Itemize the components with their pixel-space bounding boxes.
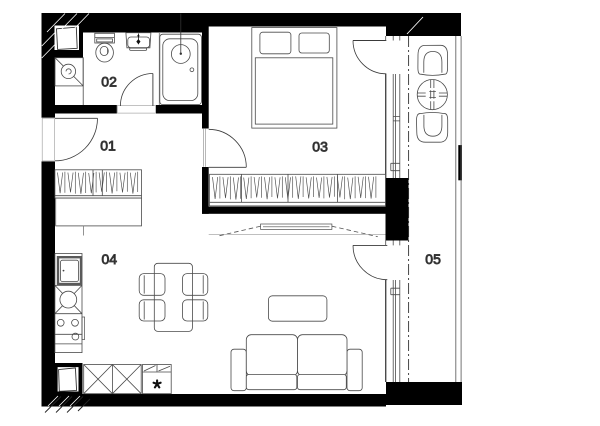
svg-text:01: 01	[100, 137, 116, 153]
svg-text:03: 03	[312, 139, 328, 155]
svg-text:04: 04	[102, 251, 118, 267]
svg-text:02: 02	[101, 73, 117, 89]
svg-text:05: 05	[425, 251, 441, 267]
